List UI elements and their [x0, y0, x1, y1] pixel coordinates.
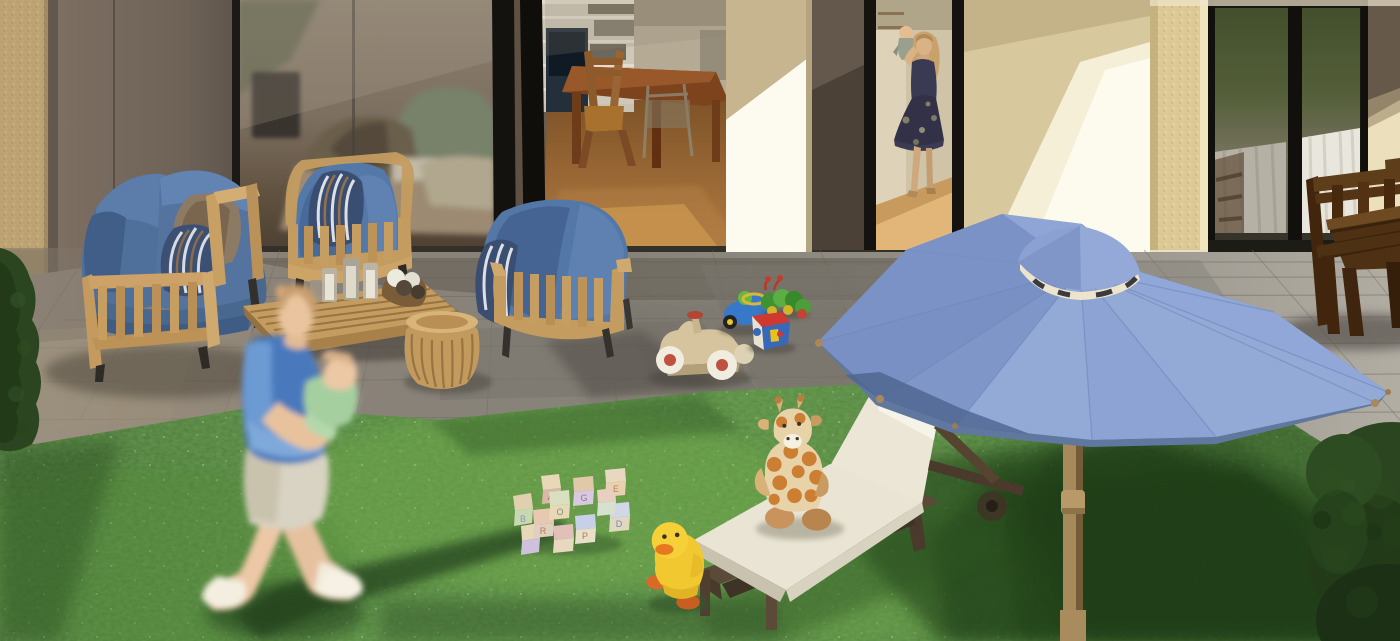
- svg-text:B: B: [520, 514, 526, 524]
- svg-text:D: D: [616, 519, 623, 529]
- svg-text:G: G: [580, 493, 587, 503]
- svg-text:R: R: [540, 526, 547, 536]
- svg-text:E: E: [613, 484, 619, 494]
- svg-text:P: P: [582, 531, 588, 541]
- svg-text:O: O: [556, 507, 563, 517]
